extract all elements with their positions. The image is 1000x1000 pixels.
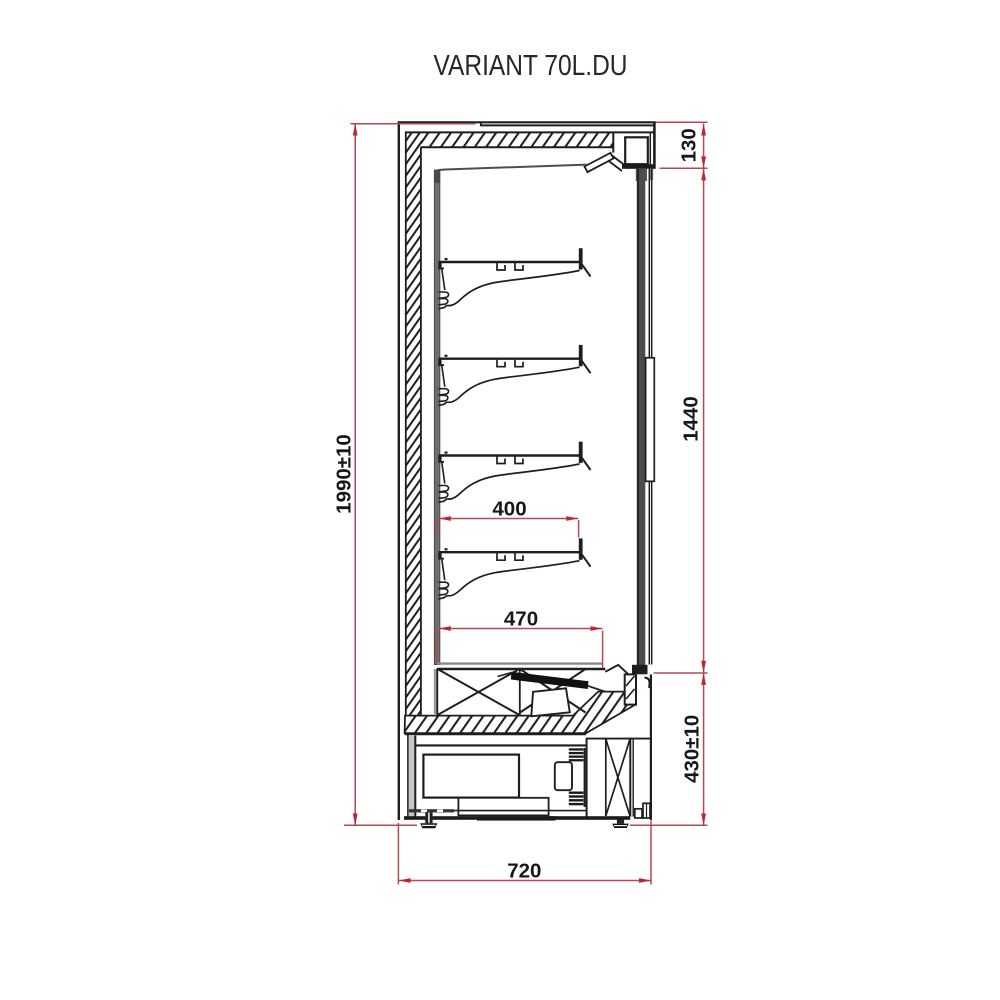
svg-text:1440: 1440 <box>680 396 703 442</box>
svg-text:470: 470 <box>504 608 538 631</box>
svg-text:1990±10: 1990±10 <box>333 434 356 514</box>
svg-text:VARIANT 70L.DU: VARIANT 70L.DU <box>434 50 628 82</box>
svg-text:430±10: 430±10 <box>680 715 703 783</box>
svg-text:400: 400 <box>492 498 526 521</box>
svg-text:130: 130 <box>678 128 701 162</box>
svg-text:720: 720 <box>507 860 541 883</box>
